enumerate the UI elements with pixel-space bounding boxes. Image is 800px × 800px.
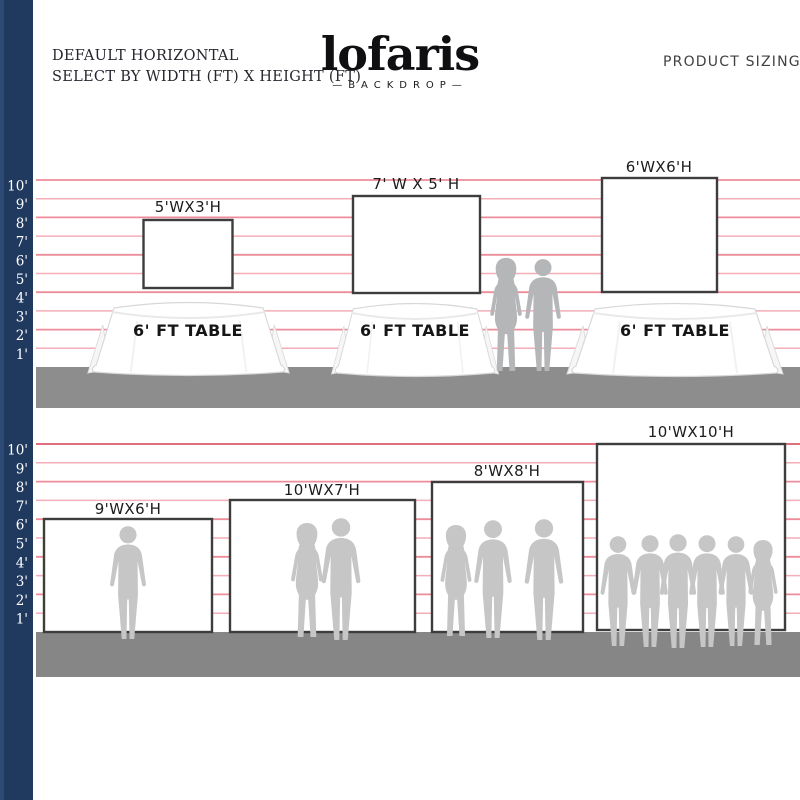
ruler-mark: 5' xyxy=(16,537,28,553)
backdrop-10x7: 10'WX7'H xyxy=(230,481,415,632)
table-1-label: 6' FT TABLE xyxy=(133,321,243,340)
backdrop-9x6-label: 9'WX6'H xyxy=(95,500,162,518)
ruler-mark: 8' xyxy=(16,216,28,232)
backdrop-6x6: 6'WX6'H xyxy=(602,158,717,292)
floor-row2 xyxy=(36,632,800,677)
backdrop-5x3-label: 5'WX3'H xyxy=(155,198,222,216)
backdrop-10x7-label: 10'WX7'H xyxy=(284,481,360,499)
ruler-mark: 6' xyxy=(16,253,28,269)
table-1: 6' FT TABLE xyxy=(88,303,289,376)
backdrop-7x5: 7' W X 5' H xyxy=(353,175,480,293)
table-2: 6' FT TABLE xyxy=(332,304,499,377)
ruler-mark: 5' xyxy=(16,272,28,288)
ruler-mark: 7' xyxy=(16,235,28,251)
ruler-mark: 10' xyxy=(7,179,28,195)
table-3: 6' FT TABLE xyxy=(567,304,783,377)
backdrop-10x10-label: 10'WX10'H xyxy=(648,423,734,441)
ruler-mark: 4' xyxy=(16,291,28,307)
backdrop-8x8-label: 8'WX8'H xyxy=(474,462,541,480)
backdrop-6x6-label: 6'WX6'H xyxy=(626,158,693,176)
ruler-mark: 1' xyxy=(16,347,28,363)
ruler-mark: 2' xyxy=(16,328,28,344)
page-title: PRODUCT SIZING xyxy=(663,54,800,70)
ruler-mark: 3' xyxy=(16,309,28,325)
ruler-mark: 1' xyxy=(16,612,28,628)
ruler-mark: 6' xyxy=(16,518,28,534)
ruler-mark: 2' xyxy=(16,593,28,609)
product-sizing-infographic: 10' 9' 8' 7' 6' 5' 4' 3' 2' 1' 6' FT TAB… xyxy=(0,0,800,800)
table-2-label: 6' FT TABLE xyxy=(360,321,470,340)
ruler-mark: 3' xyxy=(16,574,28,590)
ruler-mark: 4' xyxy=(16,555,28,571)
man-silhouette xyxy=(525,259,561,371)
ruler-marks-row1: 10' 9' 8' 7' 6' 5' 4' 3' 2' 1' xyxy=(7,179,28,363)
woman-silhouette xyxy=(490,258,522,371)
ruler-mark: 7' xyxy=(16,499,28,515)
ruler-marks-row2: 10' 9' 8' 7' 6' 5' 4' 3' 2' 1' xyxy=(7,443,28,628)
ruler-mark: 8' xyxy=(16,480,28,496)
ruler-mark: 10' xyxy=(7,443,28,459)
backdrop-5x3: 5'WX3'H xyxy=(144,198,233,288)
backdrop-7x5-label: 7' W X 5' H xyxy=(372,175,459,193)
sizing-scene: 10' 9' 8' 7' 6' 5' 4' 3' 2' 1' 6' FT TAB… xyxy=(0,0,800,800)
logo-tagline: —BACKDROP— xyxy=(290,80,510,91)
brand-logo: lofaris —BACKDROP— xyxy=(290,30,510,91)
couple-silhouette-row1 xyxy=(490,258,561,371)
ruler-mark: 9' xyxy=(16,461,28,477)
logo-wordmark: lofaris xyxy=(290,30,510,78)
ruler-mark: 9' xyxy=(16,197,28,213)
table-3-label: 6' FT TABLE xyxy=(620,321,730,340)
